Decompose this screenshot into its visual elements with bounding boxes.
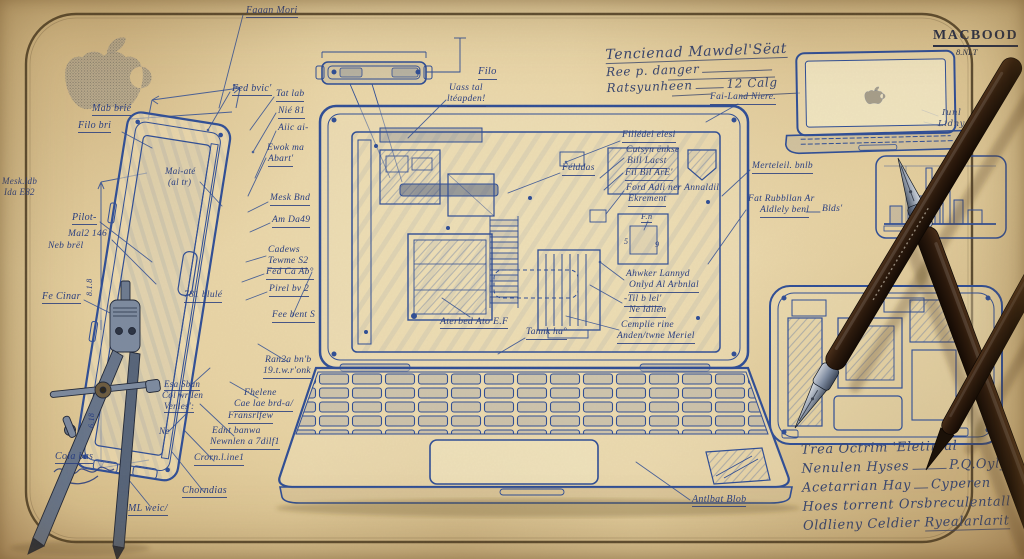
blueprint-canvas: MACBOOD 8.NLT Tencienad Mawdel'Sëat Ree …: [0, 0, 1024, 559]
drafting-pens-layer: [0, 0, 1024, 559]
